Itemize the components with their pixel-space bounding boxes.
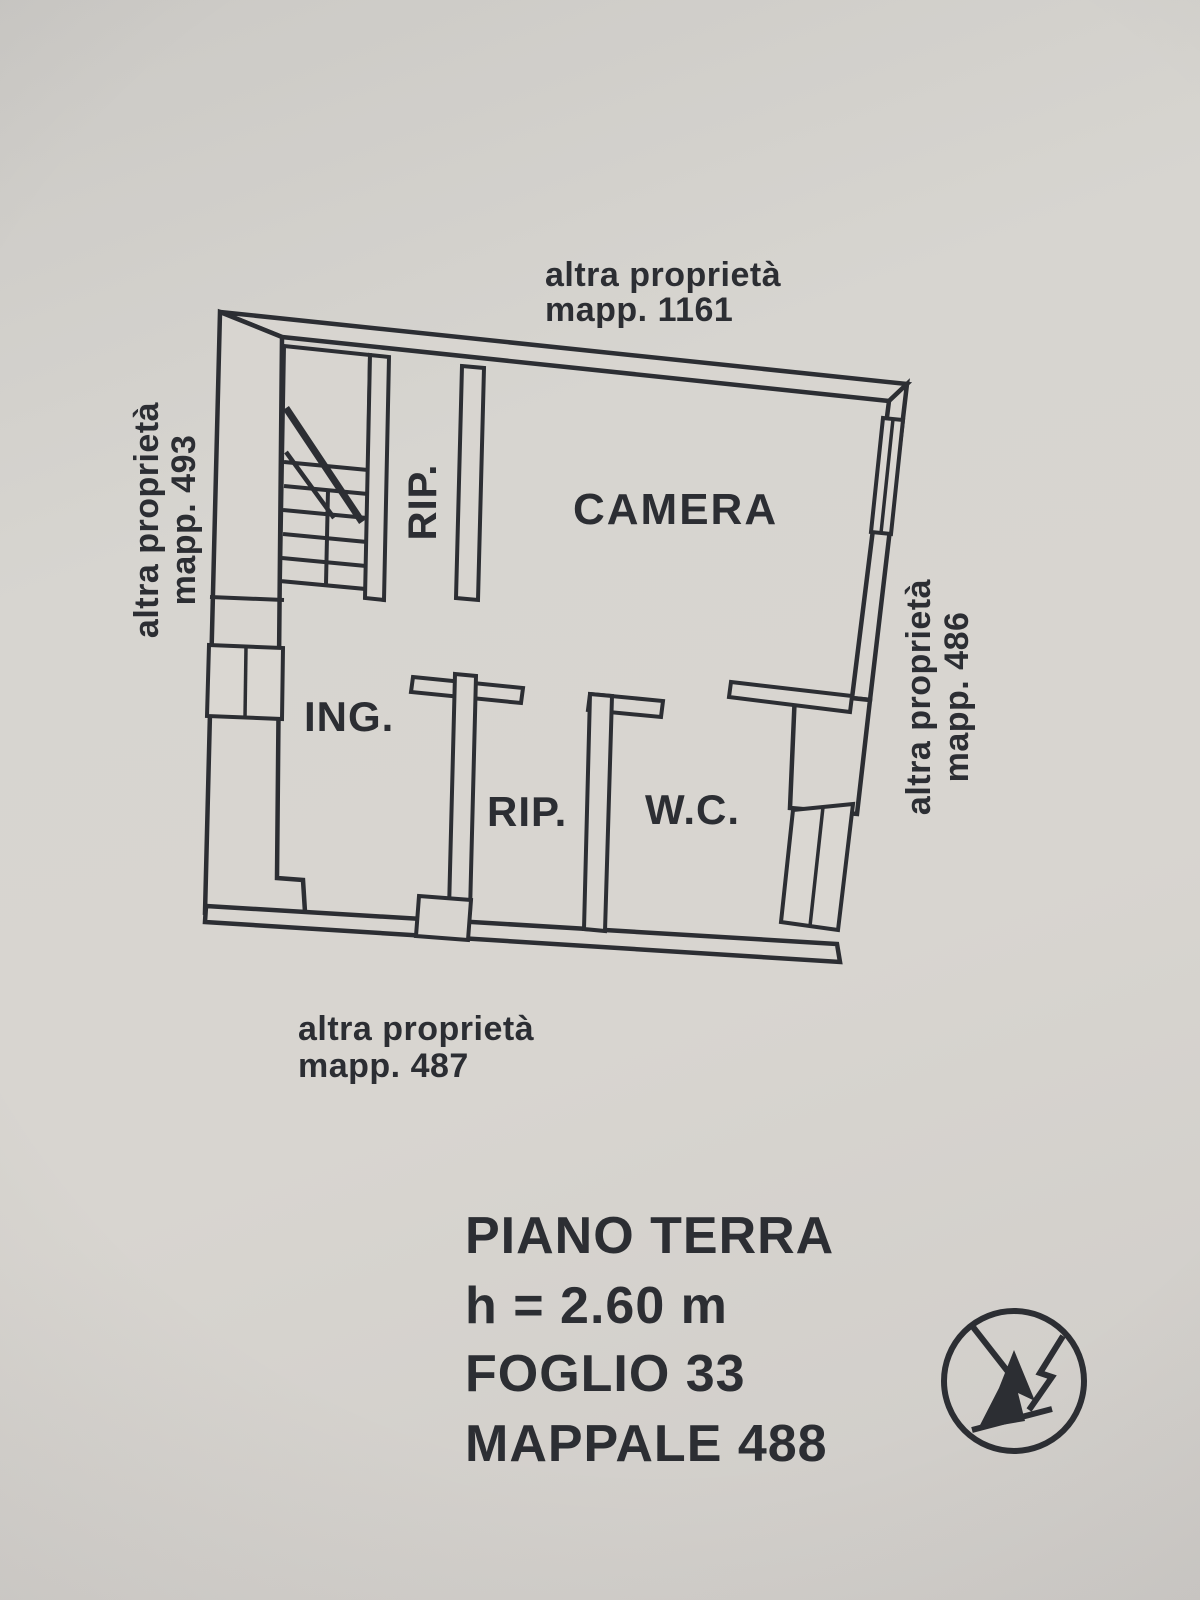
plan-info-block: PIANO TERRA h = 2.60 m FOGLIO 33 MAPPALE… — [465, 1207, 834, 1473]
room-label-entrance: ING. — [304, 693, 394, 740]
room-label-camera: CAMERA — [573, 485, 778, 534]
wall-bottom-exterior — [205, 906, 840, 962]
neighbor-top-line1: altra proprietà — [545, 256, 781, 294]
neighbor-left-line1: altra proprietà — [128, 402, 166, 638]
wall-stair-side — [365, 355, 389, 600]
cadastral-parcel: MAPPALE 488 — [465, 1415, 828, 1473]
wall-ripcloset-camera — [456, 366, 484, 600]
room-label-storage: RIP. — [487, 788, 567, 835]
room-label-wc: W.C. — [645, 786, 740, 833]
wall-ing-storage-foot — [416, 896, 471, 940]
neighbor-left-line2: mapp. 493 — [165, 435, 203, 606]
wall-camera-wc — [729, 682, 852, 712]
neighbor-right-line1: altra proprietà — [900, 579, 938, 815]
staircase — [280, 346, 370, 589]
neighbor-label-top: altra proprietà mapp. 1161 — [545, 256, 781, 329]
window-left-mullion — [245, 647, 246, 718]
floor-plan-drawing — [205, 312, 907, 962]
ceiling-height: h = 2.60 m — [465, 1277, 728, 1335]
floor-title: PIANO TERRA — [465, 1207, 834, 1265]
neighbor-label-right: altra proprietà mapp. 486 — [900, 579, 976, 815]
neighbor-bottom-line2: mapp. 487 — [298, 1047, 469, 1085]
neighbor-label-left: altra proprietà mapp. 493 — [128, 402, 203, 638]
room-label-stair-closet: RIP. — [401, 464, 445, 541]
wall-storage-wc — [584, 694, 612, 931]
cadastral-sheet: FOGLIO 33 — [465, 1345, 746, 1403]
wall-ing-storage — [449, 674, 476, 912]
neighbor-bottom-line1: altra proprietà — [298, 1010, 534, 1048]
neighbor-top-line2: mapp. 1161 — [545, 291, 733, 329]
north-arrow-icon — [944, 1311, 1084, 1451]
scanned-cadastral-plan: RIP. CAMERA ING. RIP. W.C. altra proprie… — [0, 0, 1200, 1600]
neighbor-right-line2: mapp. 486 — [938, 612, 976, 783]
neighbor-label-bottom: altra proprietà mapp. 487 — [298, 1010, 534, 1085]
